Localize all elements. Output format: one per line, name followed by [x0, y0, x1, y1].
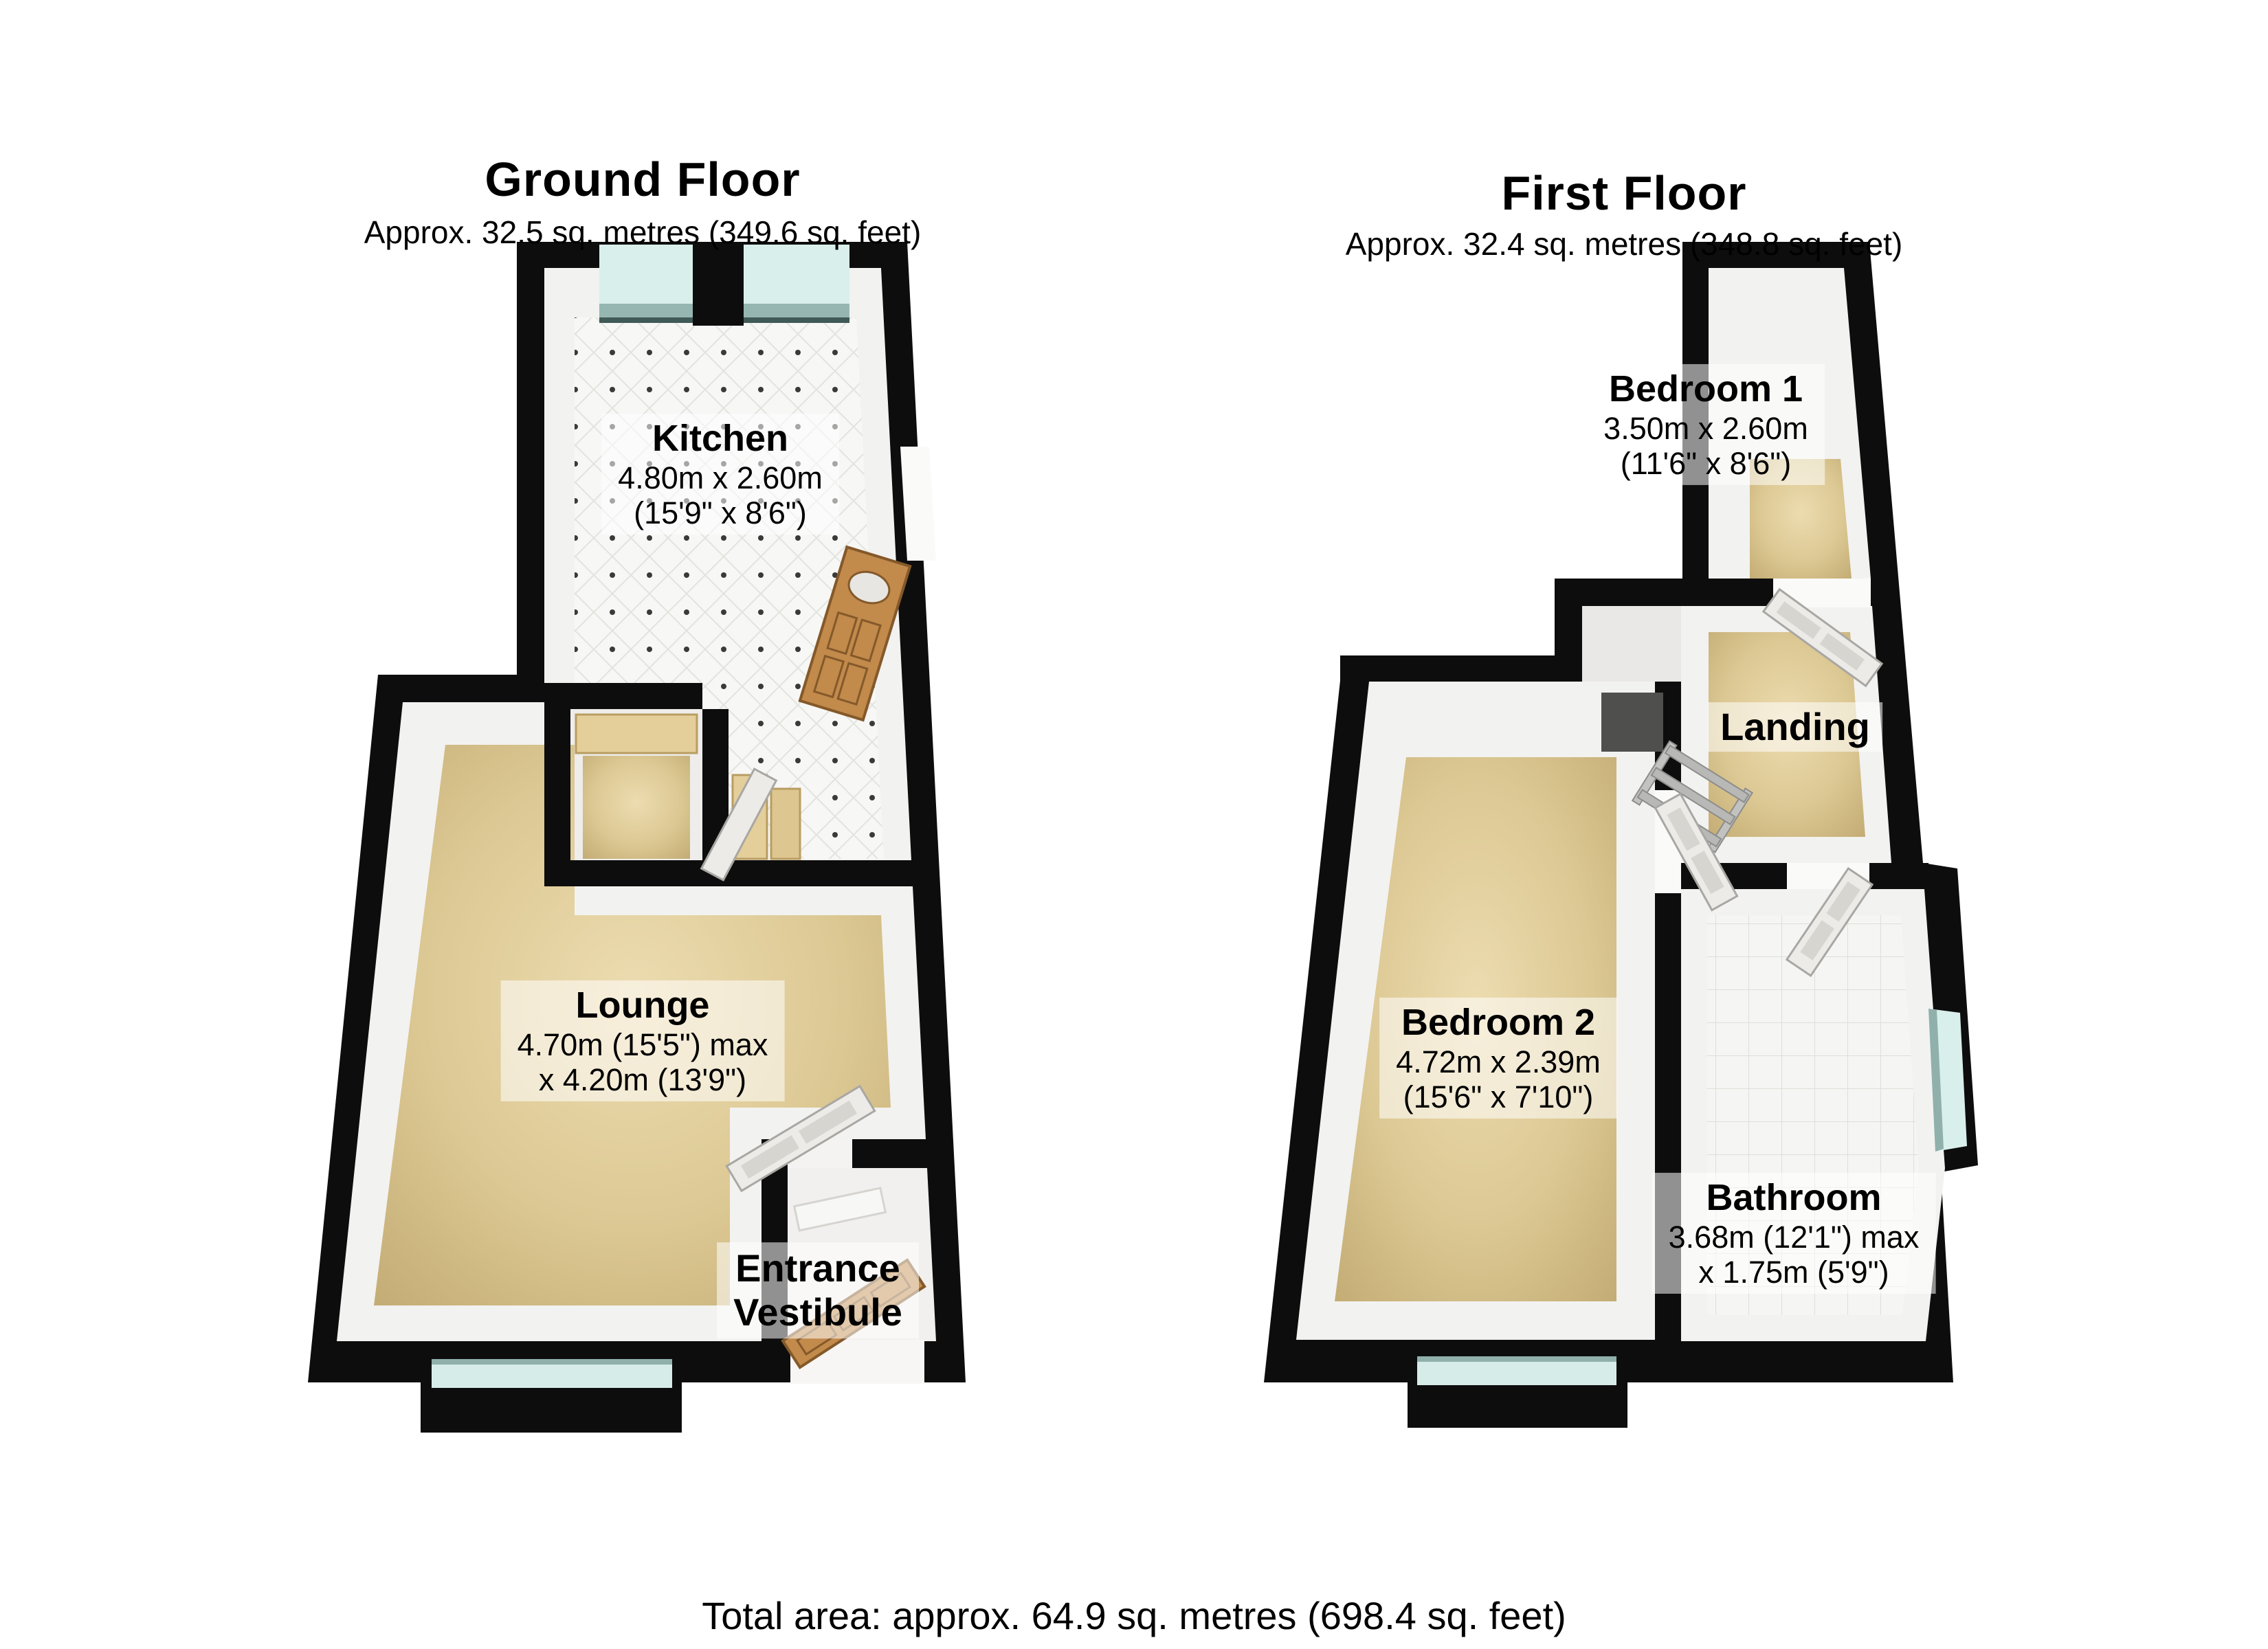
kitchen-window-1	[599, 245, 693, 323]
first-floor-title: First Floor	[1501, 166, 1746, 221]
lounge-dim2: x 4.20m (13'9")	[518, 1062, 768, 1097]
ground-floor-subtitle: Approx. 32.5 sq. metres (349.6 sq. feet)	[364, 210, 922, 250]
lounge-bay-window	[432, 1359, 672, 1388]
stair-opening	[1601, 693, 1663, 752]
lounge-label: Lounge 4.70m (15'5") max x 4.20m (13'9")	[501, 980, 785, 1101]
vestibule-name-line1: Entrance	[733, 1246, 902, 1290]
bedroom2-dim2: (15'6" x 7'10")	[1396, 1079, 1601, 1114]
bedroom1-dim1: 3.50m x 2.60m	[1603, 410, 1808, 445]
floorplan-page: Ground Floor Approx. 32.5 sq. metres (34…	[0, 0, 2268, 1649]
kitchen-window-mullion	[693, 242, 744, 326]
bedroom2-label: Bedroom 2 4.72m x 2.39m (15'6" x 7'10")	[1379, 998, 1617, 1119]
lounge-name: Lounge	[518, 985, 768, 1027]
total-area-text: Total area: approx. 64.9 sq. metres (698…	[702, 1594, 1566, 1638]
bedroom1-label: Bedroom 1 3.50m x 2.60m (11'6" x 8'6")	[1587, 364, 1825, 485]
total-area-label: Total area: approx. 64.9 sq. metres (698…	[702, 1594, 1566, 1638]
kitchen-label: Kitchen 4.80m x 2.60m (15'9" x 8'6")	[601, 414, 839, 535]
floorplan-graphic	[0, 0, 2268, 1649]
lounge-dim1: 4.70m (15'5") max	[518, 1027, 768, 1062]
closet-floor	[583, 756, 690, 859]
bedroom1-name: Bedroom 1	[1603, 368, 1808, 411]
vestibule-name-line2: Vestibule	[733, 1290, 902, 1334]
entrance-vestibule-label: Entrance Vestibule	[717, 1242, 919, 1338]
closet-counter	[576, 715, 697, 753]
bathroom-name: Bathroom	[1669, 1177, 1920, 1220]
kitchen-name: Kitchen	[618, 418, 823, 460]
landing-label: Landing	[1708, 702, 1882, 752]
first-floor-subtitle: Approx. 32.4 sq. metres (348.8 sq. feet)	[1346, 222, 1903, 262]
first-floor-title-text: First Floor	[1501, 166, 1746, 221]
kitchen-counter-2	[771, 789, 800, 859]
bathroom-dim1: 3.68m (12'1") max	[1669, 1219, 1920, 1254]
bedroom2-name: Bedroom 2	[1396, 1002, 1601, 1044]
ground-floor-title: Ground Floor	[485, 153, 800, 207]
stairwell-closet	[1582, 606, 1681, 682]
kitchen-dim1: 4.80m x 2.60m	[618, 460, 823, 495]
kitchen-window-2	[744, 245, 849, 323]
ground-floor-title-text: Ground Floor	[485, 153, 800, 207]
landing-name: Landing	[1720, 705, 1870, 749]
kitchen-dim2: (15'9" x 8'6")	[618, 495, 823, 530]
bathroom-label: Bathroom 3.68m (12'1") max x 1.75m (5'9"…	[1652, 1173, 1936, 1294]
bedroom1-dim2: (11'6" x 8'6")	[1603, 446, 1808, 481]
bedroom2-bay-window	[1417, 1356, 1616, 1385]
bedroom2-dim1: 4.72m x 2.39m	[1396, 1044, 1601, 1079]
bathroom-dim2: x 1.75m (5'9")	[1669, 1255, 1920, 1290]
